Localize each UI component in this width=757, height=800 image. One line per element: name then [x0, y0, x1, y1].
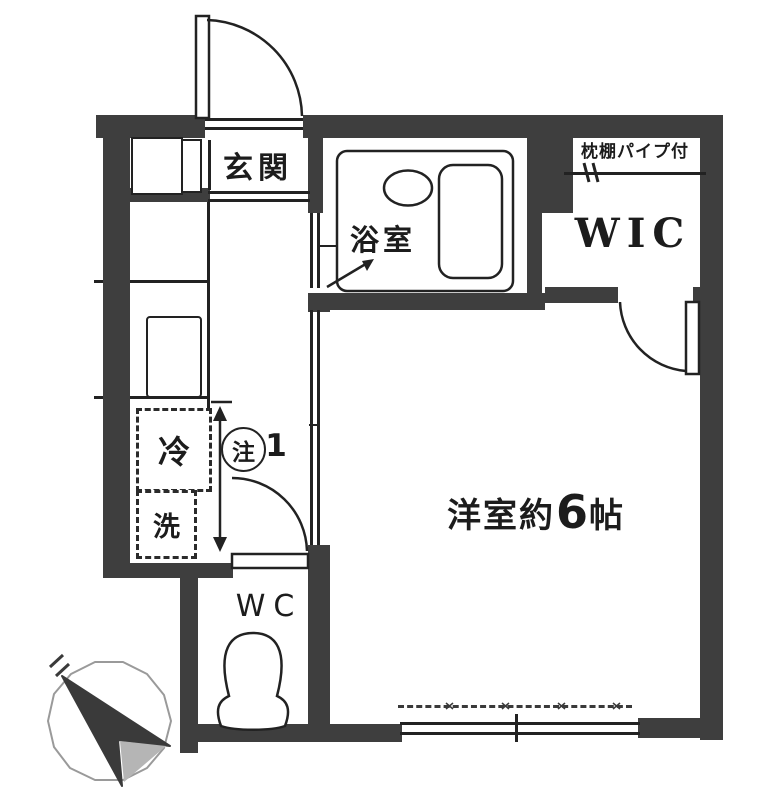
mainroom-label-prefix: 洋室約 [447, 488, 555, 537]
dimension-arrowhead-top [213, 406, 227, 421]
mainroom-label: 洋室約 6 帖 [400, 480, 670, 544]
wc-label: WC [218, 586, 314, 626]
mainroom-label-suffix: 帖 [589, 488, 623, 537]
mainroom-door-leaf [686, 302, 699, 374]
entrance-label: 玄関 [206, 146, 310, 184]
wic-pipe-mark-1 [584, 163, 589, 182]
wic-pipe-mark-2 [593, 163, 598, 182]
note-circle: 注 [221, 427, 266, 472]
bathroom-entry-arrow-line [327, 262, 369, 287]
mainroom-size-number: 6 [556, 485, 588, 539]
wc-door-leaf [232, 554, 308, 568]
wic-note-label: 枕棚パイプ付 [560, 137, 710, 161]
floor-plan: 冷 洗 [0, 0, 757, 800]
dimension-arrowhead-bottom [213, 537, 227, 552]
compass-needle [62, 676, 170, 786]
bathroom-basin [384, 171, 432, 206]
bathroom-label: 浴室 [338, 219, 428, 257]
entrance-door-leaf [196, 16, 209, 118]
window-cross-marks [446, 703, 620, 709]
note-symbol: 注 [232, 433, 255, 467]
wic-label: WIC [578, 208, 688, 258]
toilet [218, 633, 288, 730]
compass-needle-shadow [120, 741, 166, 782]
bathtub [439, 165, 502, 278]
compass [48, 655, 171, 786]
entrance-door-arc [207, 20, 302, 116]
wc-door-arc [232, 478, 307, 551]
note-number: 1 [264, 424, 288, 468]
mainroom-door-arc [620, 302, 686, 371]
compass-north-tick-1 [50, 655, 63, 667]
compass-north-tick-2 [56, 664, 69, 676]
plan-linework [0, 0, 757, 800]
